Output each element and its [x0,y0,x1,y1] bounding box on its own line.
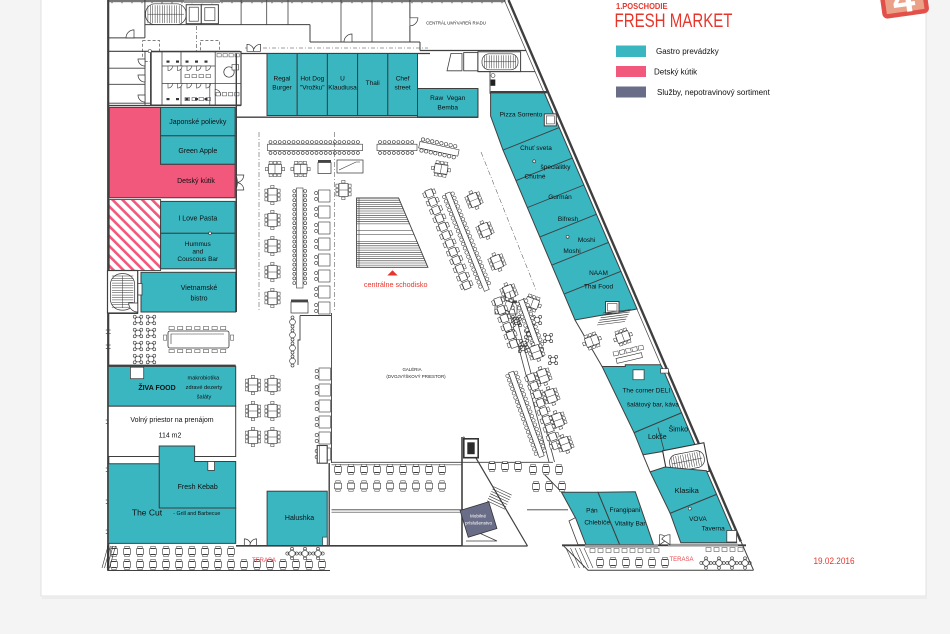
svg-text:Couscous Bar: Couscous Bar [177,256,219,263]
svg-text:Chutné: Chutné [525,174,546,181]
svg-text:Regal: Regal [274,76,292,83]
svg-text:Detský kútik: Detský kútik [177,178,215,185]
svg-text:Burger: Burger [272,85,292,92]
svg-text:bistro: bistro [190,296,207,303]
svg-text:Bifresh: Bifresh [558,216,579,223]
svg-text:19.02.2016: 19.02.2016 [814,556,855,567]
svg-text:Moshi: Moshi [563,248,580,255]
svg-text:Vietnamské: Vietnamské [181,285,218,292]
svg-text:U: U [340,76,345,83]
svg-text:VOVA: VOVA [689,516,707,523]
svg-text:Detský kútik: Detský kútik [654,68,698,77]
svg-text:and: and [192,249,203,256]
svg-text:Klasika: Klasika [675,486,700,495]
svg-text:Frangipani: Frangipani [610,507,641,514]
svg-text:Mobilné: Mobilné [470,514,487,519]
svg-text:The corner DELI: The corner DELI [622,388,670,395]
svg-text:Hot Dog: Hot Dog [300,76,324,83]
svg-text:(DVOJVÝŠKOVÝ PRIESTOR): (DVOJVÝŠKOVÝ PRIESTOR) [386,374,446,379]
svg-text:- Grill and Barbecue: - Grill and Barbecue [173,511,220,517]
svg-text:Chef: Chef [396,76,410,83]
svg-text:NAAM: NAAM [589,270,608,277]
svg-text:TERASA: TERASA [252,558,276,564]
svg-text:TERASA: TERASA [670,557,694,563]
svg-text:šalátový bar, káva: šalátový bar, káva [627,402,679,409]
svg-text:Fresh Kebab: Fresh Kebab [178,484,218,491]
svg-text:Raw Vegan: Raw Vegan [430,95,465,102]
svg-text:šaláty: šaláty [197,395,212,401]
svg-text:makrobiotika: makrobiotika [188,376,221,382]
svg-text:The Cut: The Cut [132,508,163,518]
svg-text:Volný priestor na prenájom: Volný priestor na prenájom [130,417,213,424]
svg-text:Moshi: Moshi [578,237,595,244]
svg-text:Halushka: Halushka [285,515,314,522]
svg-text:zdravé dezerty: zdravé dezerty [186,385,223,391]
svg-text:Služby, nepotravinový sortimen: Služby, nepotravinový sortiment [657,88,771,97]
svg-text:Thai Food: Thai Food [584,284,614,291]
svg-text:I Love Pasta: I Love Pasta [178,216,217,223]
svg-text:Vitality Bar: Vitality Bar [615,521,647,528]
svg-text:CENTRÁL UMÝVAREŇ RIADU: CENTRÁL UMÝVAREŇ RIADU [426,21,486,26]
svg-text:Gurmán: Gurmán [548,194,572,201]
svg-text:špecialitky: špecialitky [541,164,572,171]
svg-text:centrálne schodisko: centrálne schodisko [364,280,428,289]
svg-text:114 m2: 114 m2 [159,433,182,440]
svg-text:"Vrožku": "Vrožku" [300,85,325,92]
svg-text:Japonské polievky: Japonské polievky [169,119,227,126]
svg-text:príslušenstvo: príslušenstvo [465,521,493,526]
svg-text:Gastro prevádzky: Gastro prevádzky [656,47,719,56]
svg-text:Pán: Pán [586,508,598,515]
svg-text:Bemba: Bemba [437,105,458,112]
svg-text:FRESH MARKET: FRESH MARKET [615,10,733,32]
svg-text:Taverna: Taverna [702,526,726,533]
svg-text:Šimko: Šimko [669,425,689,434]
svg-text:Pizza Sorrento: Pizza Sorrento [500,112,543,119]
svg-text:Klaudiusa: Klaudiusa [328,85,357,92]
svg-text:Lokše: Lokše [648,434,667,441]
svg-text:Thali: Thali [366,80,380,87]
svg-text:GALÉRIA: GALÉRIA [402,367,421,372]
svg-text:Hummus: Hummus [185,241,212,248]
svg-text:Green Apple: Green Apple [178,148,217,155]
svg-text:ŽIVA FOOD: ŽIVA FOOD [138,383,175,392]
svg-text:Chuť sveta: Chuť sveta [520,145,552,152]
svg-text:street: street [394,85,410,92]
